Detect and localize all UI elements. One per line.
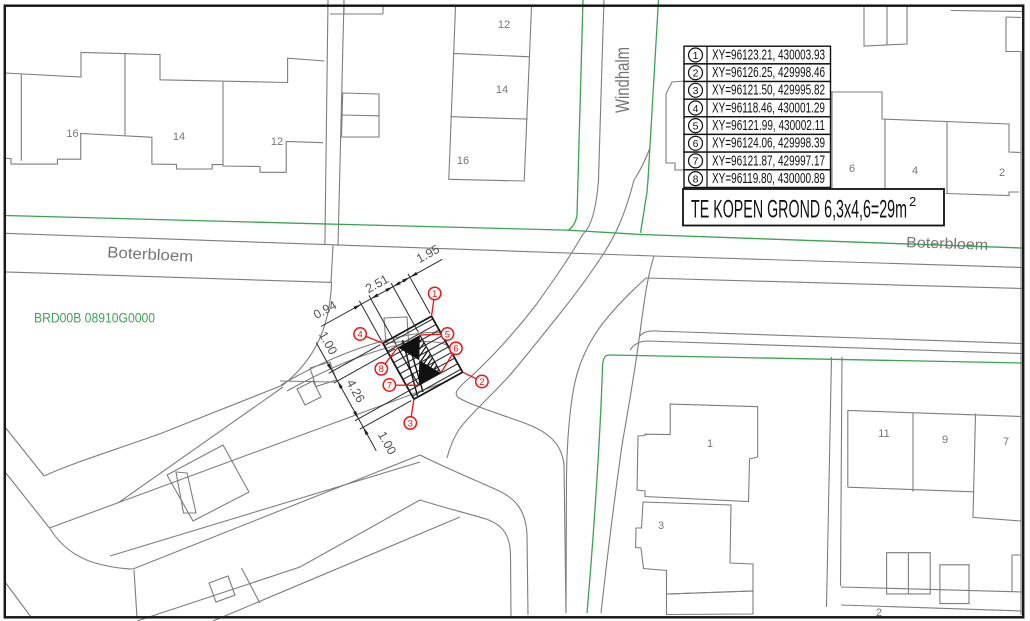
svg-text:7: 7 <box>693 156 699 168</box>
svg-text:BRD00B 08910G0000: BRD00B 08910G0000 <box>34 311 155 326</box>
svg-text:7: 7 <box>387 380 392 391</box>
svg-text:5: 5 <box>693 120 699 132</box>
svg-text:2: 2 <box>479 377 484 388</box>
svg-text:Boterbloem: Boterbloem <box>906 234 989 254</box>
svg-text:5: 5 <box>445 329 450 340</box>
svg-text:14: 14 <box>496 84 508 96</box>
svg-text:2: 2 <box>999 167 1005 179</box>
svg-text:14: 14 <box>173 131 185 143</box>
svg-text:6: 6 <box>849 163 855 175</box>
svg-text:XY=96118.46, 430001.29: XY=96118.46, 430001.29 <box>712 100 825 116</box>
svg-text:XY=96124.06, 429998.39: XY=96124.06, 429998.39 <box>712 136 825 152</box>
svg-text:8: 8 <box>693 173 699 185</box>
svg-text:6: 6 <box>453 344 458 355</box>
svg-text:2: 2 <box>909 194 916 209</box>
svg-text:9: 9 <box>942 434 948 446</box>
svg-text:3: 3 <box>658 520 664 532</box>
svg-text:XY=96123.21, 430003.93: XY=96123.21, 430003.93 <box>712 47 825 63</box>
svg-text:16: 16 <box>66 128 78 140</box>
svg-text:XY=96121.50, 429995.82: XY=96121.50, 429995.82 <box>712 83 825 99</box>
svg-text:2: 2 <box>693 68 699 80</box>
svg-text:12: 12 <box>271 136 283 148</box>
svg-text:1: 1 <box>707 438 713 450</box>
svg-text:XY=96126.25, 429998.46: XY=96126.25, 429998.46 <box>712 65 825 81</box>
svg-text:1: 1 <box>432 289 437 300</box>
svg-text:3: 3 <box>408 418 413 429</box>
svg-text:Windhalm: Windhalm <box>613 47 634 113</box>
svg-text:XY=96121.99, 430002.11: XY=96121.99, 430002.11 <box>712 118 825 134</box>
svg-text:6: 6 <box>693 138 699 150</box>
svg-text:4: 4 <box>357 329 362 340</box>
svg-text:8: 8 <box>379 364 384 375</box>
svg-text:TE KOPEN GROND 6,3x4,6=29m: TE KOPEN GROND 6,3x4,6=29m <box>691 196 907 224</box>
svg-text:16: 16 <box>457 155 469 167</box>
svg-text:1: 1 <box>693 50 699 62</box>
svg-text:4: 4 <box>693 103 699 115</box>
svg-text:4: 4 <box>912 165 918 177</box>
svg-text:XY=96121.87, 429997.17: XY=96121.87, 429997.17 <box>712 153 825 169</box>
svg-text:12: 12 <box>498 19 510 31</box>
svg-text:11: 11 <box>878 428 889 440</box>
svg-text:3: 3 <box>693 85 699 97</box>
svg-text:XY=96119.80, 430000.89: XY=96119.80, 430000.89 <box>712 171 825 187</box>
svg-text:7: 7 <box>1003 436 1009 448</box>
